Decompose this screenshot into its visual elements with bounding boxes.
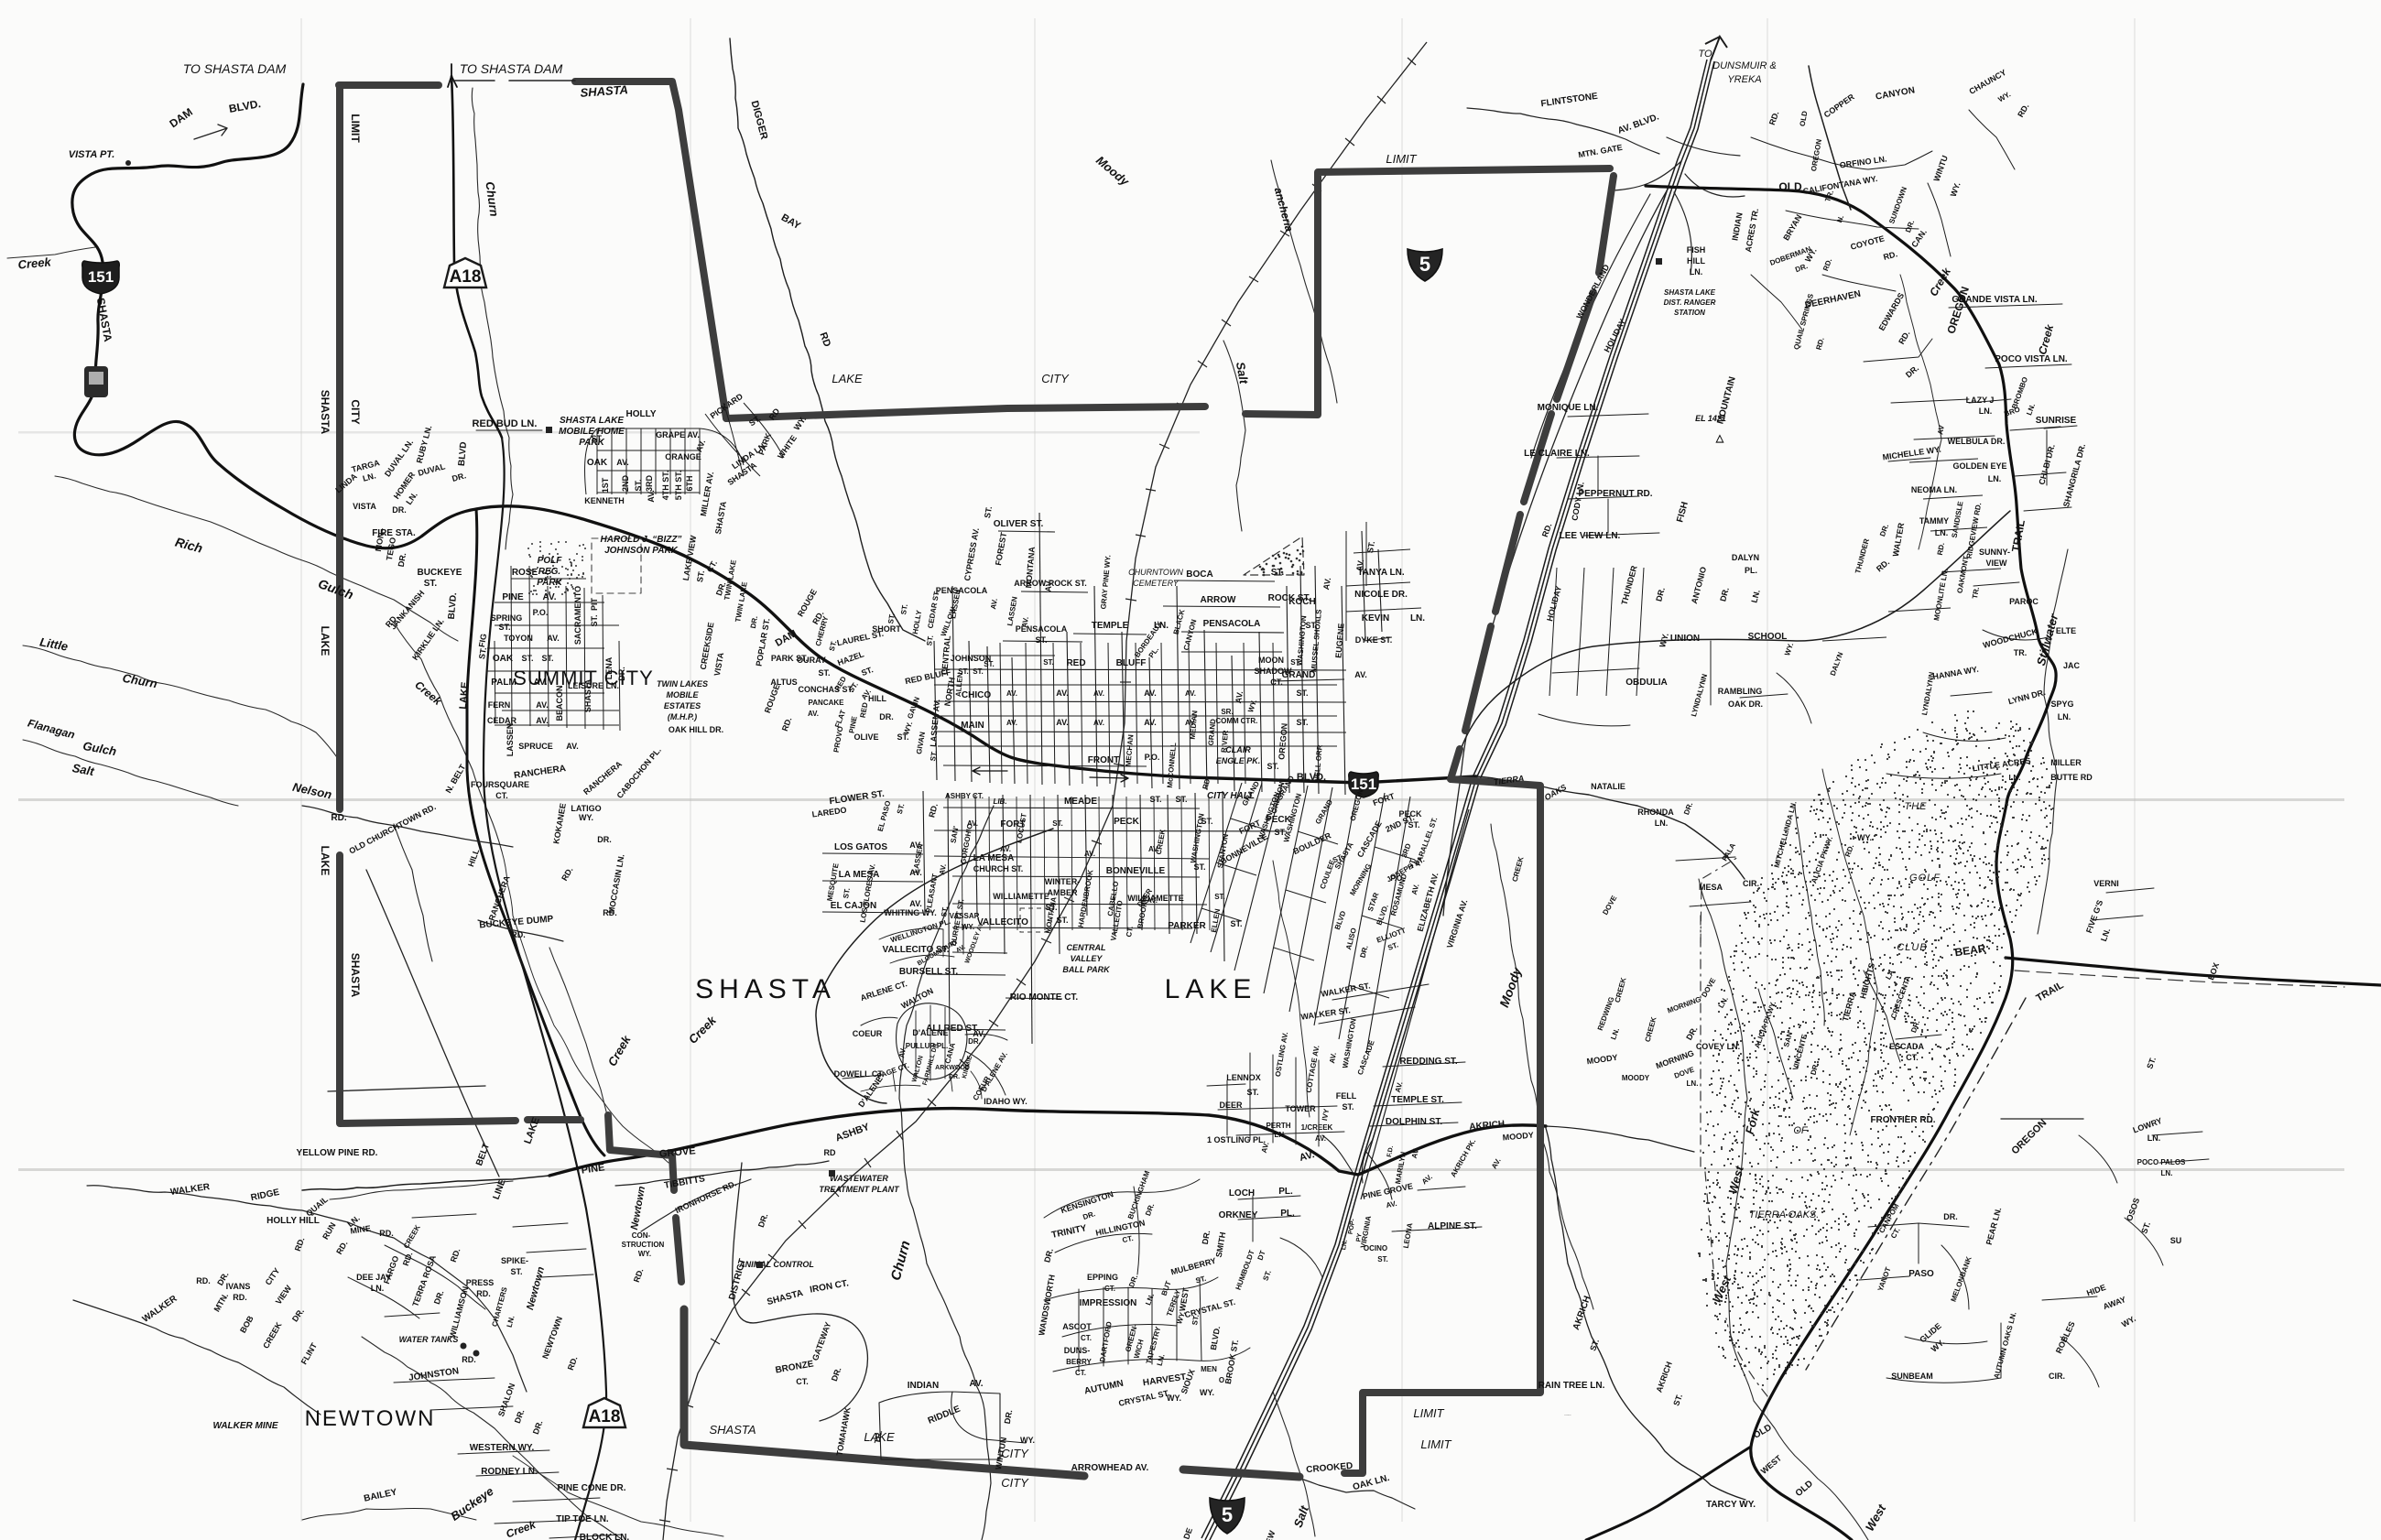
svg-text:HOLLY: HOLLY [626,409,657,419]
svg-text:ST.: ST. [1149,795,1161,804]
svg-text:WY.: WY. [1200,1388,1214,1397]
svg-text:A18: A18 [589,1407,621,1426]
svg-text:REDDING ST.: REDDING ST. [1399,1057,1458,1067]
svg-text:GRAND: GRAND [1282,670,1316,680]
svg-text:ST.: ST. [1246,1088,1258,1097]
svg-text:RD.: RD. [196,1276,211,1285]
svg-text:ST.: ST. [818,668,830,678]
svg-text:AV.: AV. [647,490,656,503]
svg-text:VALLEY: VALLEY [1071,954,1104,963]
svg-text:SPRUCE: SPRUCE [518,742,553,751]
svg-text:AV.: AV. [1056,689,1069,698]
svg-text:AV.: AV. [1006,689,1017,698]
svg-text:PEPPERNUT RD.: PEPPERNUT RD. [1578,489,1652,499]
svg-text:OLD: OLD [1778,180,1802,193]
svg-text:ST.: ST. [1296,718,1308,727]
svg-text:MAIN: MAIN [961,721,984,731]
svg-text:LN.: LN. [1410,613,1425,624]
svg-text:SHASTA: SHASTA [695,974,836,1004]
svg-text:LN.: LN. [2147,1133,2161,1143]
svg-text:RHONDA: RHONDA [1637,808,1674,817]
svg-text:OBDULIA: OBDULIA [1625,678,1668,688]
svg-text:GRAPE AV.: GRAPE AV. [656,430,700,439]
svg-text:RD.: RD. [331,813,346,823]
svg-text:AV.: AV. [909,899,922,908]
svg-text:MONIQUE LN.: MONIQUE LN. [1538,403,1599,413]
svg-text:LOCH: LOCH [1229,1188,1255,1198]
svg-text:WATER TANKS: WATER TANKS [399,1335,459,1344]
svg-text:FISH: FISH [1687,245,1706,255]
svg-text:ARROW ROCK ST.: ARROW ROCK ST. [1014,579,1087,588]
svg-text:COMM: COMM [1215,717,1239,725]
svg-text:POCO VISTA LN.: POCO VISTA LN. [1995,354,2068,364]
svg-text:KEVIN: KEVIN [1362,613,1390,624]
svg-text:LE CLAIRE LN.: LE CLAIRE LN. [1524,449,1590,459]
svg-text:TIP TOE LN.: TIP TOE LN. [556,1514,609,1524]
svg-text:PL.: PL. [1745,566,1757,575]
svg-text:MILLER: MILLER [2050,758,2082,767]
svg-text:BLOCK LN.: BLOCK LN. [580,1533,630,1540]
svg-text:1ST: 1ST [601,477,610,493]
svg-text:TIERRA OAKS.: TIERRA OAKS. [1749,1209,1820,1220]
svg-text:CIR.: CIR. [2049,1372,2065,1381]
svg-text:DUNS-: DUNS- [1064,1346,1091,1355]
svg-text:151: 151 [88,268,114,286]
svg-text:AV.: AV. [1144,718,1157,727]
svg-text:LAKE: LAKE [1165,974,1257,1004]
svg-text:CENTRAL: CENTRAL [1067,943,1106,952]
svg-text:CT.: CT. [1081,1334,1092,1342]
svg-text:MEADE: MEADE [1064,797,1097,807]
svg-text:WY.: WY. [638,1250,651,1258]
svg-text:RD.: RD. [511,930,526,939]
svg-text:DEE JAY: DEE JAY [356,1273,391,1282]
svg-text:DALYN: DALYN [1732,553,1759,562]
svg-text:LIMIT: LIMIT [1420,1437,1451,1451]
svg-text:BONNEVILLE: BONNEVILLE [1106,866,1166,876]
svg-text:KENNETH: KENNETH [584,496,625,505]
svg-text:LN.: LN. [1275,1131,1287,1139]
svg-text:CTR.: CTR. [1241,717,1258,725]
svg-text:AV.: AV. [1093,689,1104,698]
svg-text:RD.: RD. [462,1355,476,1364]
svg-text:SHASTA: SHASTA [709,1423,756,1437]
svg-text:ST.: ST. [1296,689,1308,698]
svg-text:ST.: ST. [1267,762,1278,771]
svg-text:PAROC: PAROC [2009,597,2039,606]
svg-text:CONCHAS ST.: CONCHAS ST. [798,685,853,694]
svg-text:MOODY: MOODY [1622,1074,1650,1082]
svg-text:GOLDEN EYE: GOLDEN EYE [1952,461,2006,471]
svg-text:VERNI: VERNI [2093,879,2119,888]
svg-text:CLUB: CLUB [1897,942,1927,953]
svg-text:VISTA PT.: VISTA PT. [69,149,115,160]
svg-text:SHASTA LAKE: SHASTA LAKE [560,416,624,426]
svg-text:CHICO: CHICO [962,690,991,700]
svg-text:CHURNTOWN: CHURNTOWN [1128,568,1183,577]
svg-text:KOCH: KOCH [1288,597,1315,607]
svg-text:RD.: RD. [603,908,617,917]
svg-text:WY.: WY. [1020,1436,1035,1445]
svg-text:CITY: CITY [1001,1476,1029,1490]
svg-text:CLAIR: CLAIR [1225,745,1251,754]
svg-text:AV.: AV. [1084,850,1095,858]
svg-text:CIR.: CIR. [1743,879,1759,888]
svg-text:LIMIT: LIMIT [1386,152,1417,166]
svg-text:BURSELL ST.: BURSELL ST. [899,967,958,977]
svg-text:IVANS: IVANS [226,1282,251,1291]
svg-text:A18: A18 [450,267,482,287]
svg-text:5: 5 [1419,253,1430,276]
svg-text:AV.: AV. [808,710,819,718]
svg-text:EPPING: EPPING [1087,1273,1118,1282]
svg-text:NEOMA LN.: NEOMA LN. [1911,485,1957,494]
svg-text:WY.: WY. [1857,833,1872,842]
svg-text:WILLIAMETTE: WILLIAMETTE [1127,894,1184,903]
svg-text:ST.: ST. [1342,1102,1354,1112]
svg-text:AV.: AV. [533,678,547,688]
svg-text:FRONT: FRONT [1088,755,1119,765]
svg-text:AV.: AV. [967,819,978,828]
svg-text:EL 1421: EL 1421 [1695,414,1726,423]
svg-text:LN.: LN. [2058,712,2071,721]
svg-text:VALLECITO: VALLECITO [977,917,1028,927]
svg-text:ST.: ST. [1043,658,1054,667]
svg-text:SPRING: SPRING [491,613,523,623]
svg-text:RD.: RD. [476,1289,491,1298]
svg-text:LN.: LN. [1687,1079,1699,1088]
svg-text:AV.: AV. [1093,719,1104,727]
svg-text:ARROWHEAD AV.: ARROWHEAD AV. [1071,1463,1149,1473]
svg-text:ROSE: ROSE [512,568,538,578]
svg-text:2ND: 2ND [621,475,630,493]
svg-text:CT.: CT. [796,1377,809,1386]
svg-text:MOON: MOON [1258,656,1284,665]
svg-text:ALLRED ST.: ALLRED ST. [926,1024,979,1034]
svg-text:AV.: AV. [547,634,560,643]
svg-text:DOLPHIN ST.: DOLPHIN ST. [1386,1117,1442,1127]
svg-text:TARCY WY.: TARCY WY. [1706,1500,1756,1510]
svg-text:3RD: 3RD [645,475,654,493]
svg-text:WY.: WY. [962,923,974,931]
svg-text:ST.: ST. [634,479,643,491]
svg-text:STRUCTION: STRUCTION [622,1241,665,1249]
svg-text:ST.: ST. [1035,635,1047,645]
svg-text:LASSEN: LASSEN [506,723,515,757]
svg-text:YREKA: YREKA [1727,74,1761,85]
svg-text:P.O.: P.O. [1145,753,1160,762]
svg-text:GOLF: GOLF [1909,873,1941,884]
svg-text:LN.: LN. [1655,819,1669,828]
svg-text:ST.: ST. [1056,916,1068,925]
svg-text:IDAHO WY.: IDAHO WY. [984,1097,1027,1106]
svg-text:△: △ [1715,433,1724,444]
svg-text:RODNEY LN.: RODNEY LN. [481,1467,538,1477]
svg-text:SUNBEAM: SUNBEAM [1891,1372,1933,1381]
svg-text:LN.: LN. [2161,1169,2173,1177]
svg-text:CT.: CT. [1075,1369,1086,1377]
svg-text:COVEY LN.: COVEY LN. [1696,1042,1740,1051]
svg-text:IMPRESSION: IMPRESSION [1080,1298,1137,1308]
svg-text:DR.: DR. [392,505,407,515]
svg-text:SR.: SR. [1221,708,1233,716]
svg-text:SHASTA: SHASTA [349,953,362,998]
svg-text:LN.: LN. [1979,407,1993,416]
svg-text:LN.: LN. [1935,528,1949,537]
svg-text:RED BUD LN.: RED BUD LN. [473,418,538,429]
svg-text:SUNNY-: SUNNY- [1979,548,2010,557]
svg-text:WINTER-: WINTER- [1045,877,1081,886]
svg-text:AV.: AV. [1185,719,1196,727]
svg-text:ST.: ST. [1230,919,1242,928]
svg-text:TR.: TR. [2014,648,2028,657]
svg-text:BALL PARK: BALL PARK [1062,965,1111,974]
svg-text:CITY: CITY [349,399,362,424]
svg-text:SPIKE-: SPIKE- [501,1256,528,1265]
svg-text:ARROW: ARROW [1201,595,1236,605]
svg-text:AV.: AV. [536,716,549,725]
svg-text:(M.H.P.): (M.H.P.) [668,712,697,721]
svg-text:PL.: PL. [1278,1187,1293,1197]
svg-text:MEN: MEN [1201,1365,1217,1373]
svg-text:STATION: STATION [1674,309,1705,317]
svg-text:PIT: PIT [590,598,599,612]
svg-text:LN.: LN. [371,1284,385,1293]
svg-text:RAMBLING: RAMBLING [1718,687,1763,696]
svg-text:ORANGE: ORANGE [665,452,701,461]
svg-text:BEACON: BEACON [555,685,564,721]
svg-text:FOURSQUARE: FOURSQUARE [471,780,529,789]
svg-text:DUNSMUIR &: DUNSMUIR & [1712,60,1777,71]
svg-text:LA MESA: LA MESA [973,853,1015,863]
svg-text:CT.: CT. [495,791,508,800]
svg-text:TO SHASTA DAM: TO SHASTA DAM [460,61,563,76]
svg-text:LAZY J: LAZY J [1966,396,1995,405]
svg-text:ORKNEY: ORKNEY [1219,1210,1258,1220]
svg-text:AV.: AV. [566,742,579,751]
svg-text:UNION: UNION [1670,634,1700,644]
svg-text:DIST. RANGER: DIST. RANGER [1664,298,1716,307]
svg-text:LIMIT: LIMIT [349,114,362,143]
svg-text:CHURCH ST.: CHURCH ST. [973,864,1024,873]
svg-text:ST.: ST. [984,660,995,668]
svg-text:LENNOX: LENNOX [1226,1073,1261,1082]
svg-text:AV.: AV. [1148,845,1159,853]
svg-text:TOYON: TOYON [504,634,533,643]
svg-text:AV.: AV. [1056,718,1069,727]
svg-text:ANIMAL CONTROL: ANIMAL CONTROL [738,1260,814,1269]
svg-text:PASO: PASO [1908,1269,1934,1279]
svg-text:AV.: AV. [1144,689,1157,698]
svg-text:PALM: PALM [491,678,516,688]
svg-text:AV.: AV. [1354,670,1367,679]
svg-text:AV.: AV. [542,592,556,602]
svg-text:BUCKEYE: BUCKEYE [418,568,462,578]
svg-text:RIO MONTE CT.: RIO MONTE CT. [1010,992,1079,1003]
svg-text:REG.: REG. [538,567,560,577]
svg-text:OLIVER ST.: OLIVER ST. [994,519,1044,529]
svg-text:THE: THE [1905,801,1928,812]
svg-text:TAMMY: TAMMY [1919,516,1949,526]
svg-text:ALPINE ST.: ALPINE ST. [1428,1221,1477,1231]
svg-text:ENGLE PK.: ENGLE PK. [1216,756,1261,765]
svg-text:ST.: ST. [424,579,438,589]
svg-text:POCO PALOS: POCO PALOS [2137,1158,2186,1166]
svg-text:LIMIT: LIMIT [1413,1406,1444,1420]
svg-text:NEWTOWN: NEWTOWN [305,1406,436,1431]
svg-text:GRANDE VISTA LN.: GRANDE VISTA LN. [1952,295,2038,305]
svg-text:5: 5 [1222,1503,1233,1526]
svg-text:LAKE: LAKE [864,1430,895,1444]
svg-text:CON-: CON- [632,1231,651,1240]
svg-text:FERN: FERN [488,700,511,710]
svg-text:TREATMENT PLANT: TREATMENT PLANT [819,1185,900,1194]
svg-text:RD.: RD. [379,1229,394,1238]
svg-text:BERRY: BERRY [1066,1358,1092,1366]
svg-text:ST.: ST. [1290,658,1301,667]
svg-text:VALLECITO ST.: VALLECITO ST. [883,945,950,955]
svg-text:LIB.: LIB. [993,797,1006,806]
svg-text:BUTTE RD: BUTTE RD [2050,773,2093,782]
svg-text:FELL: FELL [1336,1091,1357,1101]
svg-text:WY.: WY. [579,813,593,822]
svg-text:AV.: AV. [616,458,629,467]
svg-text:TO SHASTA DAM: TO SHASTA DAM [183,61,287,76]
svg-text:NICOLE DR.: NICOLE DR. [1354,590,1408,600]
svg-text:DYKE ST.: DYKE ST. [1355,635,1393,645]
svg-text:PANCAKE: PANCAKE [809,699,845,707]
svg-text:AV.: AV. [1185,689,1196,698]
svg-text:AV.: AV. [536,700,549,710]
svg-text:INDIAN: INDIAN [908,1381,939,1391]
svg-text:PRESS: PRESS [466,1278,495,1287]
svg-text:RD.: RD. [233,1293,247,1302]
svg-text:AV.: AV. [969,1379,983,1389]
svg-text:DR.: DR. [949,1074,960,1080]
svg-text:WASTEWATER: WASTEWATER [830,1174,888,1183]
svg-text:WILLIAMETTE: WILLIAMETTE [993,892,1049,901]
svg-text:COEUR: COEUR [853,1029,883,1038]
svg-text:ST.: ST. [1052,819,1063,828]
svg-text:LN.: LN. [1988,474,2002,483]
svg-text:OAK DR.: OAK DR. [1728,700,1763,709]
svg-text:BLVD.: BLVD. [1297,772,1326,783]
svg-text:DR.: DR. [617,667,626,681]
svg-text:OCINO: OCINO [1364,1244,1387,1253]
svg-text:ST.: ST. [498,623,510,632]
svg-text:LEISURE LN.: LEISURE LN. [568,681,619,690]
svg-text:TWIN LAKES: TWIN LAKES [657,679,708,689]
svg-text:NATALIE: NATALIE [1591,782,1625,791]
svg-text:VISTA: VISTA [353,502,376,511]
svg-text:LAKE: LAKE [319,626,332,656]
svg-text:ST.: ST. [541,654,553,663]
svg-text:BOCA: BOCA [1186,569,1212,580]
svg-text:ELTE: ELTE [2056,626,2076,635]
svg-text:LAKE: LAKE [319,846,332,876]
svg-text:CT.: CT. [1104,1285,1115,1293]
svg-text:OLIVE: OLIVE [853,732,878,742]
svg-text:LEE VIEW LN.: LEE VIEW LN. [1560,531,1621,541]
svg-text:LN.: LN. [2009,774,2021,782]
svg-text:1 OSTLING PL.: 1 OSTLING PL. [1207,1135,1266,1144]
svg-text:TEMPLE: TEMPLE [1092,621,1129,631]
svg-text:OAK HILL DR.: OAK HILL DR. [669,725,723,734]
svg-text:LOS GATOS: LOS GATOS [834,842,887,852]
svg-text:CT.: CT. [973,792,984,800]
svg-text:SHASTA LAKE: SHASTA LAKE [1664,288,1716,297]
svg-text:WELBULA DR.: WELBULA DR. [1948,437,2006,446]
svg-text:6TH: 6TH [685,475,694,491]
svg-text:LENA: LENA [604,656,614,679]
svg-text:HILL: HILL [1687,256,1705,266]
svg-text:HOLLY HILL: HOLLY HILL [266,1216,320,1226]
svg-text:RD: RD [824,1148,836,1157]
svg-text:ST.: ST. [590,614,599,626]
svg-text:SUNRISE: SUNRISE [2036,416,2077,426]
svg-text:AV.: AV. [1315,1134,1326,1143]
svg-text:MESA: MESA [1699,883,1723,892]
svg-text:WESTERN WY.: WESTERN WY. [470,1443,535,1453]
svg-text:LAKE: LAKE [832,372,863,385]
svg-text:SACRAMENTO: SACRAMENTO [573,586,582,645]
svg-text:1/CREEK: 1/CREEK [1301,1123,1333,1132]
svg-text:CEMETERY: CEMETERY [1133,579,1180,588]
svg-text:TOWER: TOWER [1285,1104,1316,1113]
svg-text:PULLUP PL.: PULLUP PL. [906,1042,949,1050]
svg-text:PINE: PINE [502,592,524,602]
svg-text:SU: SU [2170,1236,2182,1245]
svg-text:AV.: AV. [1006,719,1017,727]
svg-text:HILL: HILL [868,694,886,703]
svg-text:PINE CONE DR.: PINE CONE DR. [557,1483,625,1493]
svg-text:HAROLD J. “BIZZ”: HAROLD J. “BIZZ” [601,535,682,545]
svg-text:PARK: PARK [537,578,562,588]
svg-text:SCHOOL: SCHOOL [1748,632,1788,642]
svg-text:LATIGO: LATIGO [571,804,601,813]
svg-text:RAIN TREE LN.: RAIN TREE LN. [1538,1381,1605,1391]
svg-text:OF: OF [1793,1125,1809,1136]
svg-text:ESCADA: ESCADA [1889,1042,1925,1051]
svg-text:ST.: ST. [521,654,533,663]
svg-text:PARK ST.: PARK ST. [771,654,808,663]
svg-text:4TH ST.: 4TH ST. [661,471,670,501]
svg-text:AMBER: AMBER [1048,888,1078,897]
svg-text:DR.: DR. [968,1037,981,1046]
svg-text:TO: TO [1698,49,1712,60]
svg-text:VIEW: VIEW [1985,559,2007,568]
svg-text:AV.: AV. [1000,845,1011,853]
svg-text:LN.: LN. [1690,267,1703,277]
svg-text:JAC: JAC [2063,661,2081,670]
svg-text:Creek: Creek [17,255,52,271]
svg-text:DR.: DR. [597,835,612,844]
svg-text:WHITING WY.: WHITING WY. [884,908,937,917]
svg-text:DR.: DR. [879,712,894,721]
svg-text:DEER: DEER [1219,1101,1243,1110]
svg-text:JOHNSON PARK: JOHNSON PARK [604,546,679,556]
svg-text:CITY: CITY [1041,372,1070,385]
svg-text:ST.: ST. [591,434,603,443]
svg-text:PERTH: PERTH [1266,1122,1290,1130]
svg-text:O: O [1219,1376,1224,1384]
svg-text:TEMPLE ST.: TEMPLE ST. [1391,1095,1444,1105]
svg-text:ST.: ST. [1271,568,1285,578]
svg-text:FRONTIER RD.: FRONTIER RD. [1870,1115,1935,1125]
svg-text:ST.: ST. [1377,1255,1388,1263]
svg-text:RED: RED [1066,658,1085,668]
svg-text:CT.: CT. [1906,1053,1919,1062]
